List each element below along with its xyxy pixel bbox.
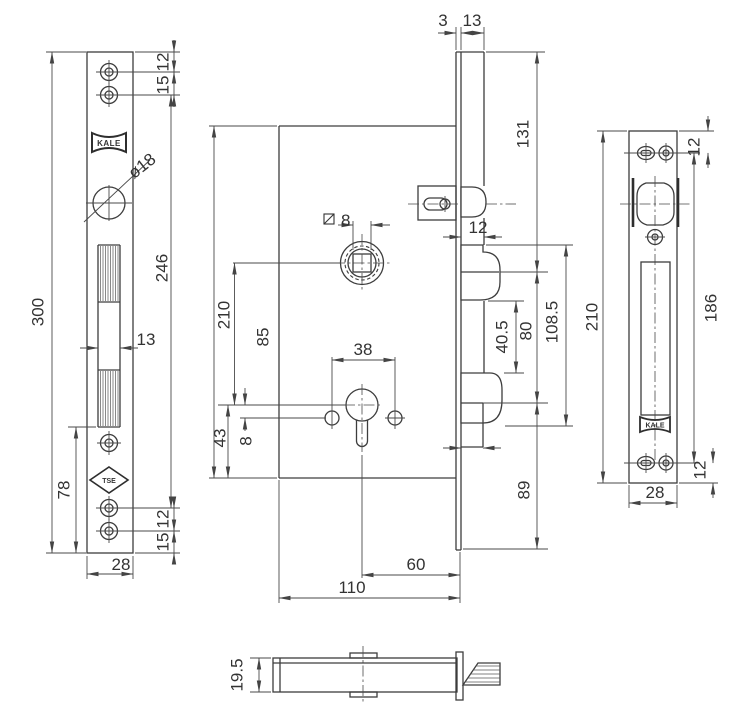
dim-label-front-top-gap: 15	[154, 76, 173, 95]
dim-label-front-height: 300	[29, 298, 48, 326]
dim-label-front-screw-span: 246	[153, 254, 172, 282]
fixing-hole-left	[325, 357, 339, 429]
mortise-lock-drawing: KALE ø18	[0, 0, 732, 719]
dim-label-front-top-offset: 12	[154, 53, 173, 72]
dim-label-strike-width: 28	[646, 483, 665, 502]
dim-label-side-bottom-section: 89	[515, 481, 534, 500]
bolt-hatch-bottom	[101, 371, 119, 426]
strike-plate-dimensions	[597, 116, 718, 508]
dim-label-body-depth: 110	[338, 578, 365, 597]
strike-plate-view: KALE	[583, 116, 721, 508]
side-profile-dimensions	[438, 27, 573, 549]
dim-label-latch-protrusion: 12	[469, 218, 488, 237]
dim-label-strike-top-offset: 12	[685, 138, 704, 157]
dim-label-body-thickness: 13	[463, 11, 482, 30]
dim-label-hole-offset: 8	[237, 436, 256, 445]
fixing-hole-right	[385, 357, 405, 429]
square-spindle-dimension	[324, 214, 390, 250]
dim-label-follower-to-cylinder: 85	[254, 328, 273, 347]
top-tab	[350, 653, 377, 658]
upper-hook-bolt	[461, 245, 500, 300]
dim-label-thickness: 19.5	[228, 658, 247, 691]
dim-label-hook-pitch: 80	[517, 322, 536, 341]
dim-label-front-bottom-section: 78	[55, 481, 74, 500]
bolt-opening	[641, 262, 670, 415]
dim-label-latch-position: 131	[514, 120, 533, 148]
dim-label-bolt-width: 13	[137, 330, 156, 349]
tse-logo-text: TSE	[102, 478, 116, 485]
bolt-hatch-top	[101, 246, 119, 301]
dim-label-front-bottom-offset: 15	[154, 533, 173, 552]
dim-label-backset: 60	[407, 555, 426, 574]
dim-label-cylinder-to-bottom: 43	[211, 429, 230, 448]
euro-cylinder-hole	[344, 384, 380, 452]
technical-drawing-page: KALE ø18	[0, 0, 732, 719]
dim-label-square-spindle: 8	[341, 211, 350, 230]
spindle-follower	[334, 234, 390, 292]
latch-bolt-profile	[463, 663, 500, 685]
bottom-tab	[350, 692, 377, 697]
side-profile-view: 3 13 131 12 40.5 80 108.5 89	[438, 11, 573, 549]
bottom-view-dimensions	[250, 658, 271, 692]
latch-bolt-head	[461, 187, 486, 217]
dim-label-front-bottom-gap: 12	[154, 510, 173, 529]
dim-label-hook-outer-span: 108.5	[543, 301, 562, 344]
tse-logo: TSE	[90, 467, 128, 493]
faceplate-edge-strip	[456, 52, 484, 550]
dim-label-hole-diameter: ø18	[125, 149, 160, 182]
dim-label-body-height: 210	[215, 301, 234, 329]
kale-logo: KALE	[92, 133, 126, 152]
lock-body-view: 8	[209, 52, 516, 603]
dim-label-faceplate-thickness: 3	[438, 11, 447, 30]
screw-hole	[97, 431, 121, 455]
lower-hook-bolt	[461, 373, 502, 447]
latch-housing	[418, 186, 456, 220]
dim-label-hook-gap: 40.5	[493, 320, 512, 353]
dim-label-front-width: 28	[112, 555, 131, 574]
dim-label-strike-screw-span: 186	[702, 294, 721, 322]
kale-logo-text: KALE	[645, 423, 664, 430]
kale-logo: KALE	[640, 417, 670, 432]
dim-label-fixing-span: 38	[354, 340, 373, 359]
front-plate-view: KALE ø18	[29, 40, 181, 579]
dim-label-strike-height: 210	[583, 303, 602, 331]
bottom-view: 19.5	[228, 646, 501, 703]
lock-body-dimensions	[209, 126, 460, 603]
dim-label-strike-bottom-offset: 12	[691, 461, 710, 480]
deadbolt-cutout	[98, 245, 120, 427]
kale-logo-text: KALE	[97, 139, 121, 148]
